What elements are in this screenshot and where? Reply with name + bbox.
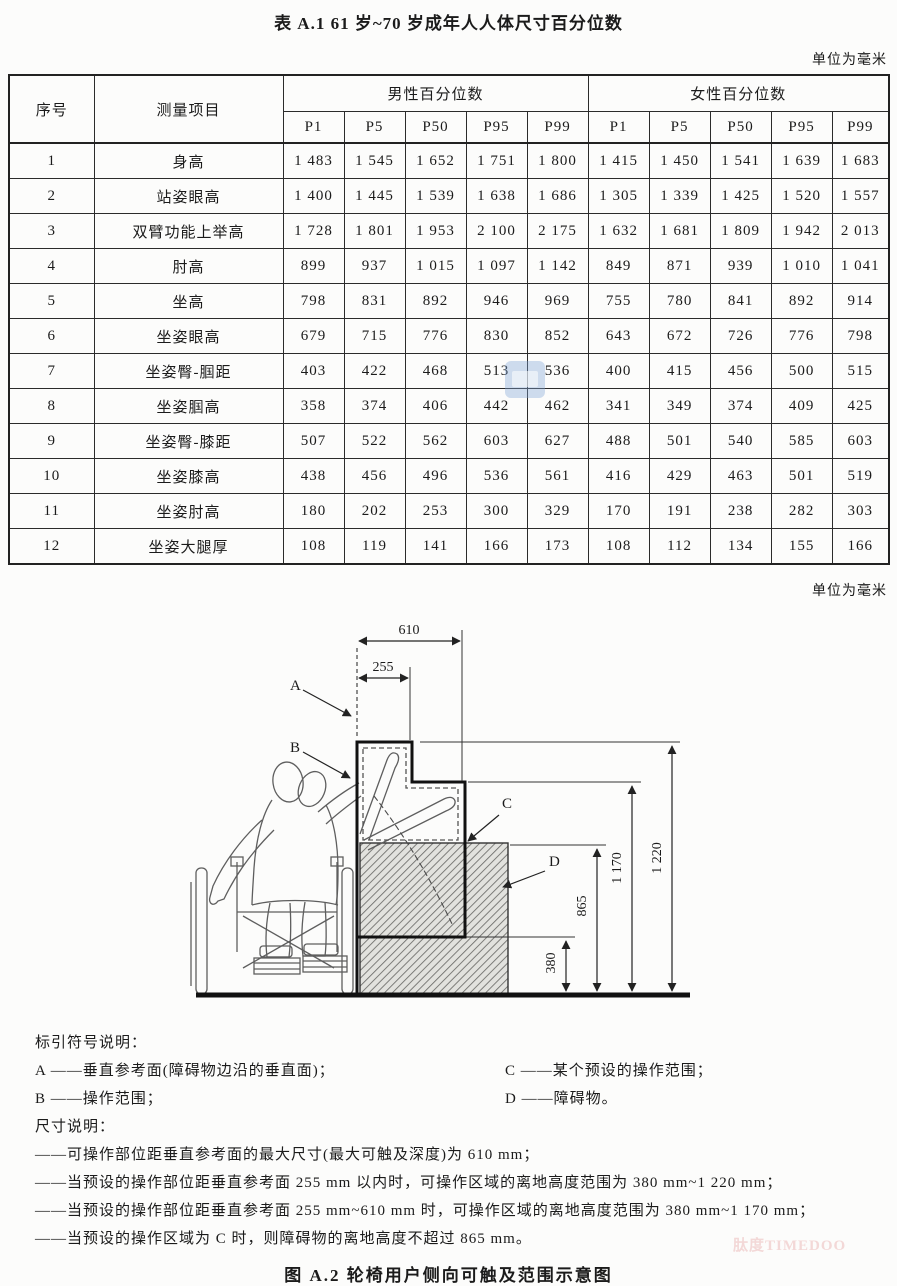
cell-value: 1 801 bbox=[344, 214, 405, 249]
cell-value: 358 bbox=[283, 389, 344, 424]
cell-value: 108 bbox=[588, 529, 649, 565]
cell-value: 400 bbox=[588, 354, 649, 389]
cell-value: 798 bbox=[832, 319, 889, 354]
cell-value: 488 bbox=[588, 424, 649, 459]
cell-value: 849 bbox=[588, 249, 649, 284]
cell-value: 170 bbox=[588, 494, 649, 529]
cell-item: 坐姿眼高 bbox=[94, 319, 283, 354]
dimension-note: ——当预设的操作部位距垂直参考面 255 mm~610 mm 时，可操作区域的离… bbox=[35, 1197, 897, 1225]
percentile-header: P5 bbox=[649, 112, 710, 144]
cell-value: 679 bbox=[283, 319, 344, 354]
cell-value: 191 bbox=[649, 494, 710, 529]
cell-value: 1 305 bbox=[588, 179, 649, 214]
cell-value: 1 425 bbox=[710, 179, 771, 214]
cell-value: 173 bbox=[527, 529, 588, 565]
legend-symbol-rows: A ——垂直参考面(障碍物边沿的垂直面)；C ——某个预设的操作范围；B ——操… bbox=[35, 1057, 897, 1113]
cell-value: 300 bbox=[466, 494, 527, 529]
legend-row: B ——操作范围；D ——障碍物。 bbox=[35, 1085, 897, 1113]
cell-value: 1 639 bbox=[771, 143, 832, 179]
cell-value: 562 bbox=[405, 424, 466, 459]
legend-row: A ——垂直参考面(障碍物边沿的垂直面)；C ——某个预设的操作范围； bbox=[35, 1057, 897, 1085]
cell-value: 1 638 bbox=[466, 179, 527, 214]
table-row: 9坐姿臀-膝距507522562603627488501540585603 bbox=[9, 424, 889, 459]
cell-value: 1 632 bbox=[588, 214, 649, 249]
cell-index: 12 bbox=[9, 529, 94, 565]
cell-value: 425 bbox=[832, 389, 889, 424]
percentile-header: P5 bbox=[344, 112, 405, 144]
cell-value: 1 097 bbox=[466, 249, 527, 284]
cell-value: 253 bbox=[405, 494, 466, 529]
dim-1220-label: 1 220 bbox=[650, 842, 665, 874]
cell-value: 501 bbox=[771, 459, 832, 494]
table-row: 3双臂功能上举高1 7281 8011 9532 1002 1751 6321 … bbox=[9, 214, 889, 249]
cell-value: 2 175 bbox=[527, 214, 588, 249]
cell-value: 1 010 bbox=[771, 249, 832, 284]
cell-value: 1 450 bbox=[649, 143, 710, 179]
header-index: 序号 bbox=[9, 75, 94, 143]
obstacle-d-region bbox=[360, 843, 508, 995]
header-male-group: 男性百分位数 bbox=[283, 75, 588, 112]
cell-value: 141 bbox=[405, 529, 466, 565]
cell-value: 180 bbox=[283, 494, 344, 529]
cell-value: 1 400 bbox=[283, 179, 344, 214]
legend-block: 标引符号说明： A ——垂直参考面(障碍物边沿的垂直面)；C ——某个预设的操作… bbox=[35, 1029, 897, 1253]
cell-value: 134 bbox=[710, 529, 771, 565]
cell-value: 456 bbox=[710, 354, 771, 389]
table-body: 1身高1 4831 5451 6521 7511 8001 4151 4501 … bbox=[9, 143, 889, 564]
label-b: B bbox=[290, 740, 300, 756]
legend-dims-heading: 尺寸说明： bbox=[35, 1113, 897, 1141]
cell-item: 坐姿腘高 bbox=[94, 389, 283, 424]
percentile-header: P99 bbox=[832, 112, 889, 144]
figure-caption: 图 A.2 轮椅用户侧向可触及范围示意图 bbox=[0, 1261, 897, 1286]
cell-value: 871 bbox=[649, 249, 710, 284]
table-row: 2站姿眼高1 4001 4451 5391 6381 6861 3051 339… bbox=[9, 179, 889, 214]
cell-value: 406 bbox=[405, 389, 466, 424]
cell-value: 416 bbox=[588, 459, 649, 494]
percentile-header: P1 bbox=[283, 112, 344, 144]
cell-value: 561 bbox=[527, 459, 588, 494]
cell-index: 11 bbox=[9, 494, 94, 529]
table-row: 10坐姿膝高438456496536561416429463501519 bbox=[9, 459, 889, 494]
cell-value: 501 bbox=[649, 424, 710, 459]
cell-value: 166 bbox=[466, 529, 527, 565]
table-row: 7坐姿臀-腘距403422468513536400415456500515 bbox=[9, 354, 889, 389]
cell-value: 914 bbox=[832, 284, 889, 319]
legend-item: D ——障碍物。 bbox=[505, 1085, 618, 1113]
dimension-note: ——当预设的操作部位距垂直参考面 255 mm 以内时，可操作区域的离地高度范围… bbox=[35, 1169, 897, 1197]
cell-value: 627 bbox=[527, 424, 588, 459]
cell-value: 1 041 bbox=[832, 249, 889, 284]
cell-value: 507 bbox=[283, 424, 344, 459]
cell-value: 830 bbox=[466, 319, 527, 354]
percentile-header: P50 bbox=[405, 112, 466, 144]
dim-380-label: 380 bbox=[544, 953, 559, 974]
cell-value: 1 557 bbox=[832, 179, 889, 214]
cell-value: 715 bbox=[344, 319, 405, 354]
cell-value: 1 445 bbox=[344, 179, 405, 214]
cell-value: 349 bbox=[649, 389, 710, 424]
cell-value: 1 681 bbox=[649, 214, 710, 249]
cell-value: 780 bbox=[649, 284, 710, 319]
cell-value: 726 bbox=[710, 319, 771, 354]
dim-865-label: 865 bbox=[575, 896, 590, 917]
cell-value: 937 bbox=[344, 249, 405, 284]
cell-value: 536 bbox=[466, 459, 527, 494]
cell-value: 1 800 bbox=[527, 143, 588, 179]
cell-value: 496 bbox=[405, 459, 466, 494]
cell-item: 坐姿臀-膝距 bbox=[94, 424, 283, 459]
cell-value: 1 520 bbox=[771, 179, 832, 214]
table-row: 8坐姿腘高358374406442462341349374409425 bbox=[9, 389, 889, 424]
percentile-header: P95 bbox=[771, 112, 832, 144]
table-row: 11坐姿肘高180202253300329170191238282303 bbox=[9, 494, 889, 529]
unit-note-top: 单位为毫米 bbox=[0, 49, 887, 69]
cell-value: 108 bbox=[283, 529, 344, 565]
cell-index: 8 bbox=[9, 389, 94, 424]
legend-item: B ——操作范围； bbox=[35, 1085, 505, 1113]
label-d: D bbox=[549, 854, 560, 870]
cell-value: 643 bbox=[588, 319, 649, 354]
cell-value: 1 728 bbox=[283, 214, 344, 249]
cell-value: 341 bbox=[588, 389, 649, 424]
cell-value: 1 541 bbox=[710, 143, 771, 179]
cell-value: 1 545 bbox=[344, 143, 405, 179]
cell-value: 238 bbox=[710, 494, 771, 529]
cell-value: 456 bbox=[344, 459, 405, 494]
percentile-header: P99 bbox=[527, 112, 588, 144]
header-item: 测量项目 bbox=[94, 75, 283, 143]
cell-value: 1 751 bbox=[466, 143, 527, 179]
cell-value: 946 bbox=[466, 284, 527, 319]
cell-value: 892 bbox=[405, 284, 466, 319]
figure-a2: 610 255 A B C D 1 220 1 170 865 380 bbox=[0, 605, 897, 1025]
cell-value: 852 bbox=[527, 319, 588, 354]
watermark-text: 肽度TIMEDOO bbox=[733, 1234, 846, 1255]
cell-value: 463 bbox=[710, 459, 771, 494]
header-female-group: 女性百分位数 bbox=[588, 75, 889, 112]
wheelchair-outline bbox=[191, 857, 353, 994]
cell-value: 2 100 bbox=[466, 214, 527, 249]
cell-index: 4 bbox=[9, 249, 94, 284]
cell-value: 798 bbox=[283, 284, 344, 319]
wheelchair-reach-diagram: 610 255 A B C D 1 220 1 170 865 380 bbox=[0, 605, 897, 1025]
cell-value: 468 bbox=[405, 354, 466, 389]
cell-item: 坐姿膝高 bbox=[94, 459, 283, 494]
cell-value: 1 539 bbox=[405, 179, 466, 214]
cell-value: 755 bbox=[588, 284, 649, 319]
label-c: C bbox=[502, 796, 512, 812]
cell-value: 603 bbox=[832, 424, 889, 459]
cell-index: 2 bbox=[9, 179, 94, 214]
cell-value: 119 bbox=[344, 529, 405, 565]
unit-note-middle: 单位为毫米 bbox=[0, 580, 887, 600]
cell-item: 坐姿大腿厚 bbox=[94, 529, 283, 565]
cell-value: 403 bbox=[283, 354, 344, 389]
cell-value: 155 bbox=[771, 529, 832, 565]
cell-value: 112 bbox=[649, 529, 710, 565]
legend-item: A ——垂直参考面(障碍物边沿的垂直面)； bbox=[35, 1057, 505, 1085]
cell-value: 841 bbox=[710, 284, 771, 319]
cell-value: 2 013 bbox=[832, 214, 889, 249]
cell-value: 374 bbox=[710, 389, 771, 424]
cell-value: 409 bbox=[771, 389, 832, 424]
dim-1170-label: 1 170 bbox=[610, 852, 625, 884]
dim-610-label: 610 bbox=[399, 623, 420, 638]
cell-value: 374 bbox=[344, 389, 405, 424]
cell-index: 6 bbox=[9, 319, 94, 354]
cell-value: 1 809 bbox=[710, 214, 771, 249]
cell-item: 坐姿臀-腘距 bbox=[94, 354, 283, 389]
cell-value: 776 bbox=[771, 319, 832, 354]
cell-value: 831 bbox=[344, 284, 405, 319]
cell-item: 肘高 bbox=[94, 249, 283, 284]
cell-value: 1 142 bbox=[527, 249, 588, 284]
cell-value: 438 bbox=[283, 459, 344, 494]
cell-value: 1 483 bbox=[283, 143, 344, 179]
cell-item: 坐姿肘高 bbox=[94, 494, 283, 529]
cell-index: 7 bbox=[9, 354, 94, 389]
percentile-header: P95 bbox=[466, 112, 527, 144]
cell-index: 10 bbox=[9, 459, 94, 494]
percentile-header: P50 bbox=[710, 112, 771, 144]
cell-value: 540 bbox=[710, 424, 771, 459]
table-title: 表 A.1 61 岁~70 岁成年人人体尺寸百分位数 bbox=[0, 0, 897, 34]
cell-item: 双臂功能上举高 bbox=[94, 214, 283, 249]
cell-value: 1 683 bbox=[832, 143, 889, 179]
cell-value: 1 015 bbox=[405, 249, 466, 284]
percentile-header: P1 bbox=[588, 112, 649, 144]
cell-value: 892 bbox=[771, 284, 832, 319]
cell-value: 1 415 bbox=[588, 143, 649, 179]
cell-value: 1 652 bbox=[405, 143, 466, 179]
cell-value: 1 339 bbox=[649, 179, 710, 214]
cell-value: 1 942 bbox=[771, 214, 832, 249]
cell-item: 坐高 bbox=[94, 284, 283, 319]
cell-value: 585 bbox=[771, 424, 832, 459]
cell-value: 303 bbox=[832, 494, 889, 529]
watermark-blue-blob bbox=[505, 361, 545, 398]
legend-symbols-heading: 标引符号说明： bbox=[35, 1029, 897, 1057]
cell-value: 202 bbox=[344, 494, 405, 529]
cell-value: 415 bbox=[649, 354, 710, 389]
cell-value: 500 bbox=[771, 354, 832, 389]
cell-value: 515 bbox=[832, 354, 889, 389]
cell-index: 3 bbox=[9, 214, 94, 249]
cell-index: 5 bbox=[9, 284, 94, 319]
cell-value: 1 686 bbox=[527, 179, 588, 214]
cell-index: 9 bbox=[9, 424, 94, 459]
cell-value: 429 bbox=[649, 459, 710, 494]
dimension-note: ——可操作部位距垂直参考面的最大尺寸(最大可触及深度)为 610 mm； bbox=[35, 1141, 897, 1169]
cell-value: 522 bbox=[344, 424, 405, 459]
cell-value: 672 bbox=[649, 319, 710, 354]
cell-index: 1 bbox=[9, 143, 94, 179]
label-a: A bbox=[290, 678, 301, 694]
cell-value: 519 bbox=[832, 459, 889, 494]
table-row: 5坐高798831892946969755780841892914 bbox=[9, 284, 889, 319]
cell-value: 422 bbox=[344, 354, 405, 389]
anthropometry-table: 序号 测量项目 男性百分位数 女性百分位数 P1P5P50P95P99P1P5P… bbox=[8, 74, 890, 565]
table-row: 4肘高8999371 0151 0971 1428498719391 0101 … bbox=[9, 249, 889, 284]
legend-item: C ——某个预设的操作范围； bbox=[505, 1057, 713, 1085]
cell-value: 939 bbox=[710, 249, 771, 284]
dim-255-label: 255 bbox=[373, 660, 394, 675]
cell-value: 166 bbox=[832, 529, 889, 565]
cell-value: 776 bbox=[405, 319, 466, 354]
cell-item: 身高 bbox=[94, 143, 283, 179]
table-row: 1身高1 4831 5451 6521 7511 8001 4151 4501 … bbox=[9, 143, 889, 179]
table-row: 12坐姿大腿厚108119141166173108112134155166 bbox=[9, 529, 889, 565]
cell-value: 899 bbox=[283, 249, 344, 284]
cell-value: 282 bbox=[771, 494, 832, 529]
cell-value: 969 bbox=[527, 284, 588, 319]
cell-value: 1 953 bbox=[405, 214, 466, 249]
table-row: 6坐姿眼高679715776830852643672726776798 bbox=[9, 319, 889, 354]
cell-item: 站姿眼高 bbox=[94, 179, 283, 214]
cell-value: 603 bbox=[466, 424, 527, 459]
cell-value: 329 bbox=[527, 494, 588, 529]
